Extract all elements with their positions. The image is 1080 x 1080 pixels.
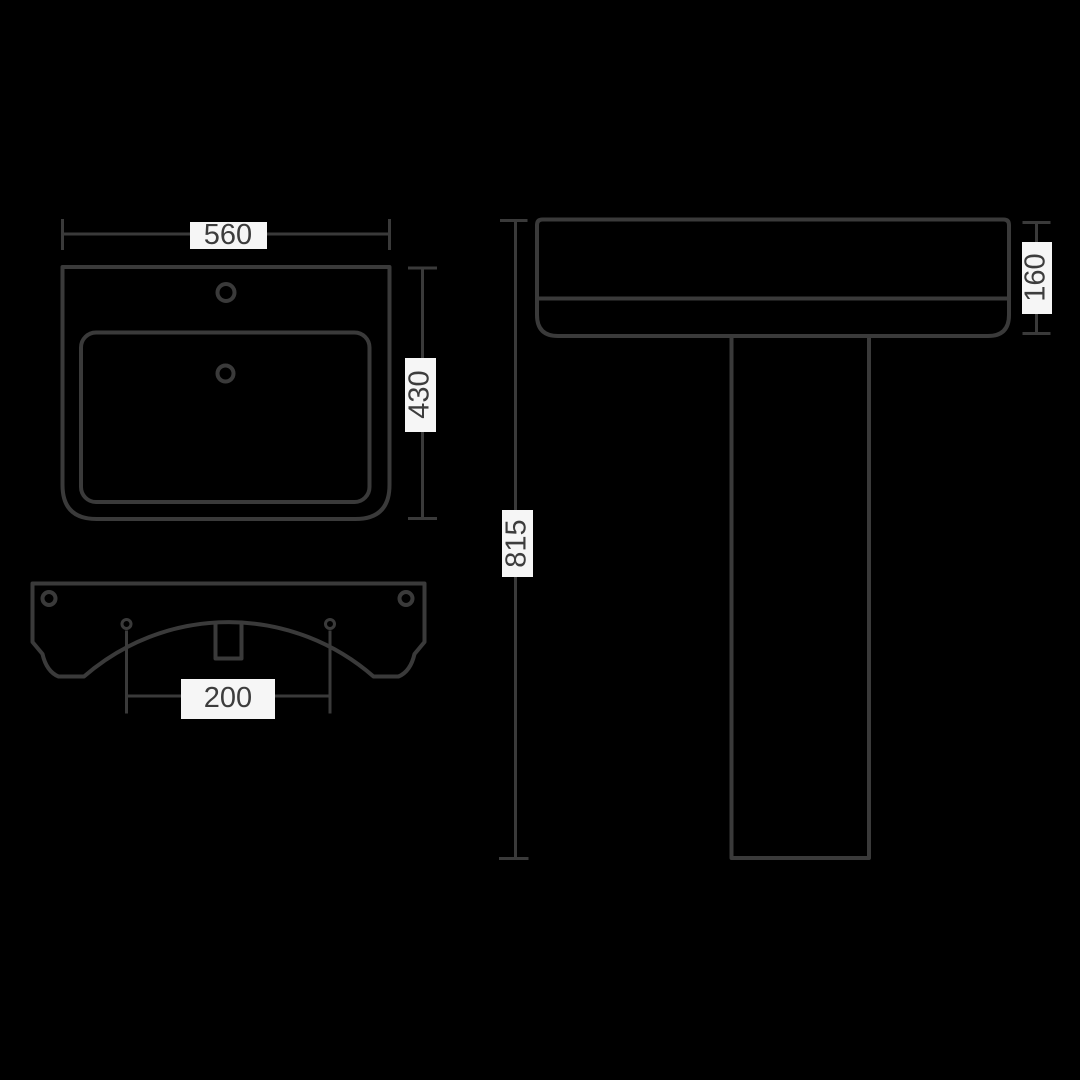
overflow-hole xyxy=(218,366,234,382)
wall-fixing-hole-left xyxy=(43,592,56,605)
rear-outline xyxy=(33,584,425,677)
wall-fixing-hole-right xyxy=(400,592,413,605)
tap-centre-hole-left xyxy=(122,620,131,629)
side-basin-body xyxy=(537,220,1009,337)
basin-drawing-linework xyxy=(0,0,1080,1080)
pedestal xyxy=(732,336,870,858)
dim-value-plan-width: 560 xyxy=(204,221,252,250)
dim-label-fixing-centres: 200 xyxy=(181,679,275,719)
side-view xyxy=(499,220,1051,859)
plan-outer-rim xyxy=(63,267,390,519)
tap-centre-hole-right xyxy=(326,620,335,629)
plan-view xyxy=(63,219,438,519)
plan-inner-bowl xyxy=(81,333,370,503)
dim-label-overall-height: 815 xyxy=(502,510,533,577)
dim-value-rim-depth: 160 xyxy=(1022,253,1051,301)
technical-drawing-canvas: 560 430 200 815 160 xyxy=(0,0,1080,1080)
dim-value-plan-depth: 430 xyxy=(406,370,435,418)
dim-value-overall-height: 815 xyxy=(503,519,532,567)
dim-label-rim-depth: 160 xyxy=(1022,242,1052,314)
dim-label-plan-depth: 430 xyxy=(405,358,436,432)
dim-value-fixing-centres: 200 xyxy=(204,684,252,713)
dim-label-plan-width: 560 xyxy=(190,222,267,249)
waste-slot xyxy=(216,624,242,659)
tap-hole xyxy=(218,284,235,301)
